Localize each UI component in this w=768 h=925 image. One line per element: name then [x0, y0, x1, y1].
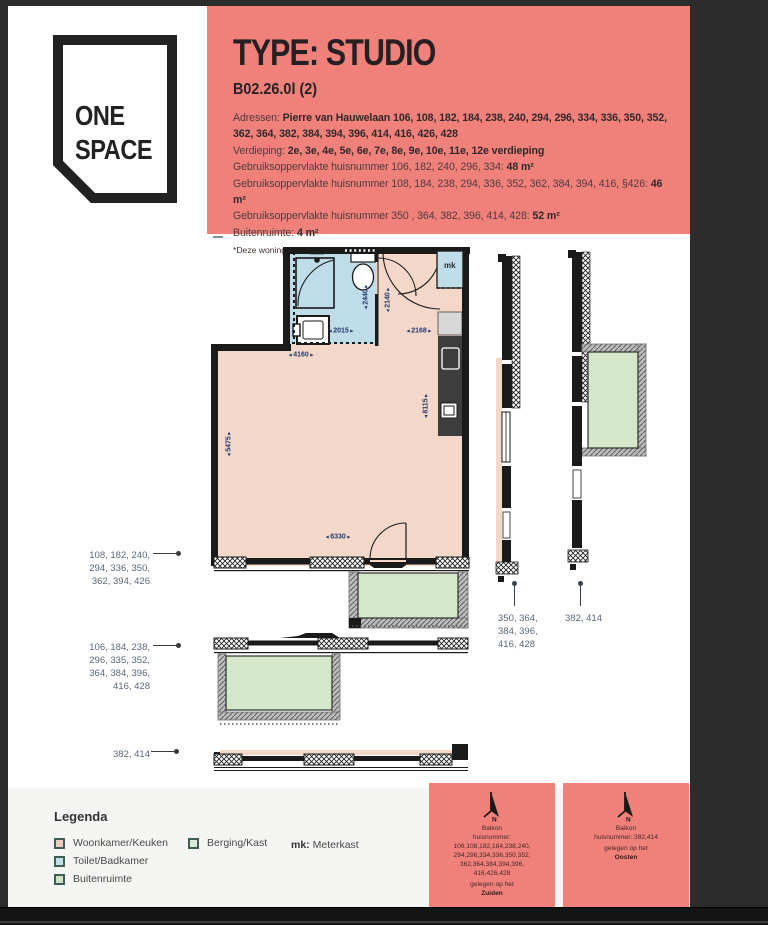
dim-bath-width: 2015: [329, 328, 353, 335]
meterkast: mk: [437, 251, 463, 288]
kitchen-counter: [438, 312, 462, 436]
floor-plan: mk: [205, 241, 695, 786]
buitenruimte-swatch: [54, 874, 65, 885]
header-details: Adressen: Pierre van Hauwelaan 106, 108,…: [233, 110, 675, 255]
legend-item-berging: Berging/Kast: [188, 837, 267, 849]
section-arrow-2: [580, 584, 581, 606]
sink-icon: [297, 316, 329, 344]
oppervlakte-line-3: Gebruiksoppervlakte huisnummer 350 , 364…: [233, 208, 675, 224]
dim-hall-depth: 2140: [385, 288, 392, 312]
balcony-main: [349, 572, 468, 628]
leader-arrow-1: [153, 553, 178, 554]
one-space-logo: ONE SPACE: [53, 35, 177, 203]
door-threshold: [366, 562, 410, 568]
scale-dash: [213, 236, 223, 238]
compass-north-icon: N: [614, 790, 638, 822]
dim-kitchen-width: 2168: [407, 328, 431, 335]
dim-room-top: 4160: [289, 352, 313, 359]
legend-item-woonkamer: Woonkamer/Keuken: [54, 837, 168, 849]
dim-kitchen-length: 8115: [423, 394, 430, 418]
page: ONE SPACE TYPE: STUDIO B02.26.0l (2) Adr…: [8, 6, 690, 907]
dim-room-bottom: 6330: [326, 534, 350, 541]
balkon-note-zuiden: N Balkon huisnummer: 106,108,182,184,238…: [429, 783, 555, 907]
balcony-b-floor: [588, 352, 638, 448]
wall-section-b: [568, 250, 646, 570]
kitchen-sink-icon: [441, 403, 457, 418]
legend-title: Legenda: [54, 809, 107, 824]
compass-north-icon: N: [480, 790, 504, 822]
oppervlakte-line-1: Gebruiksoppervlakte huisnummer 106, 182,…: [233, 159, 675, 175]
wall-section-c: [214, 633, 468, 724]
facade-wall: [214, 557, 469, 571]
section-arrow-1: [514, 584, 515, 606]
window-strip: [246, 560, 310, 565]
screenshot-stage: ONE SPACE TYPE: STUDIO B02.26.0l (2) Adr…: [0, 0, 768, 925]
woonkamer-swatch: [54, 838, 65, 849]
huisnummers-label-3: 382, 414: [58, 748, 150, 761]
huisnummers-label-2: 106, 184, 238, 296, 335, 352, 364, 384, …: [58, 641, 150, 693]
adressen-line: Adressen: Pierre van Hauwelaan 106, 108,…: [233, 110, 675, 143]
balkon-note-oosten: N Balkon huisnummer: 382,414 gelegen op …: [563, 783, 689, 907]
logo-line1: ONE: [75, 101, 125, 131]
svg-text:N: N: [492, 817, 497, 823]
dim-bath-depth: 2440: [363, 285, 370, 309]
unit-code: B02.26.0l (2): [233, 81, 621, 99]
header-block: TYPE: STUDIO B02.26.0l (2) Adressen: Pie…: [207, 6, 690, 234]
dim-room-depth: 5475: [226, 432, 233, 456]
berging-swatch: [188, 838, 199, 849]
huisnummers-label-1: 108, 182, 240, 294, 336, 350, 362, 394, …: [58, 549, 150, 588]
buitenruimte-line: Buitenruimte: 4 m²: [233, 225, 675, 241]
leader-arrow-3: [151, 751, 176, 752]
legend-item-toilet: Toilet/Badkamer: [54, 855, 148, 867]
oppervlakte-line-2: Gebruiksoppervlakte huisnummer 108, 184,…: [233, 176, 675, 209]
mk-label: mk: [444, 261, 456, 270]
section-label-1: 350, 364, 384, 396, 416, 428: [498, 612, 538, 651]
legend-item-buitenruimte: Buitenruimte: [54, 873, 132, 885]
verdieping-line: Verdieping: 2e, 3e, 4e, 5e, 6e, 7e, 8e, …: [233, 143, 675, 159]
leader-arrow-2: [153, 645, 178, 646]
wall-section-d: [214, 744, 468, 771]
window-bottom-bar: [0, 907, 768, 925]
section-label-2: 382, 414: [565, 612, 602, 625]
balcony-c-floor: [226, 656, 332, 710]
toilet-tank-icon: [351, 253, 375, 262]
logo-line2: SPACE: [75, 135, 152, 165]
legend-item-meterkast: mk: Meterkast: [291, 839, 359, 851]
fridge-icon: [438, 312, 462, 335]
toilet-swatch: [54, 856, 65, 867]
svg-text:N: N: [626, 817, 631, 823]
wall-section-a: [496, 254, 520, 582]
page-title: TYPE: STUDIO: [233, 32, 586, 74]
showerhead-icon: [314, 257, 320, 263]
balcony-floor: [358, 573, 458, 618]
